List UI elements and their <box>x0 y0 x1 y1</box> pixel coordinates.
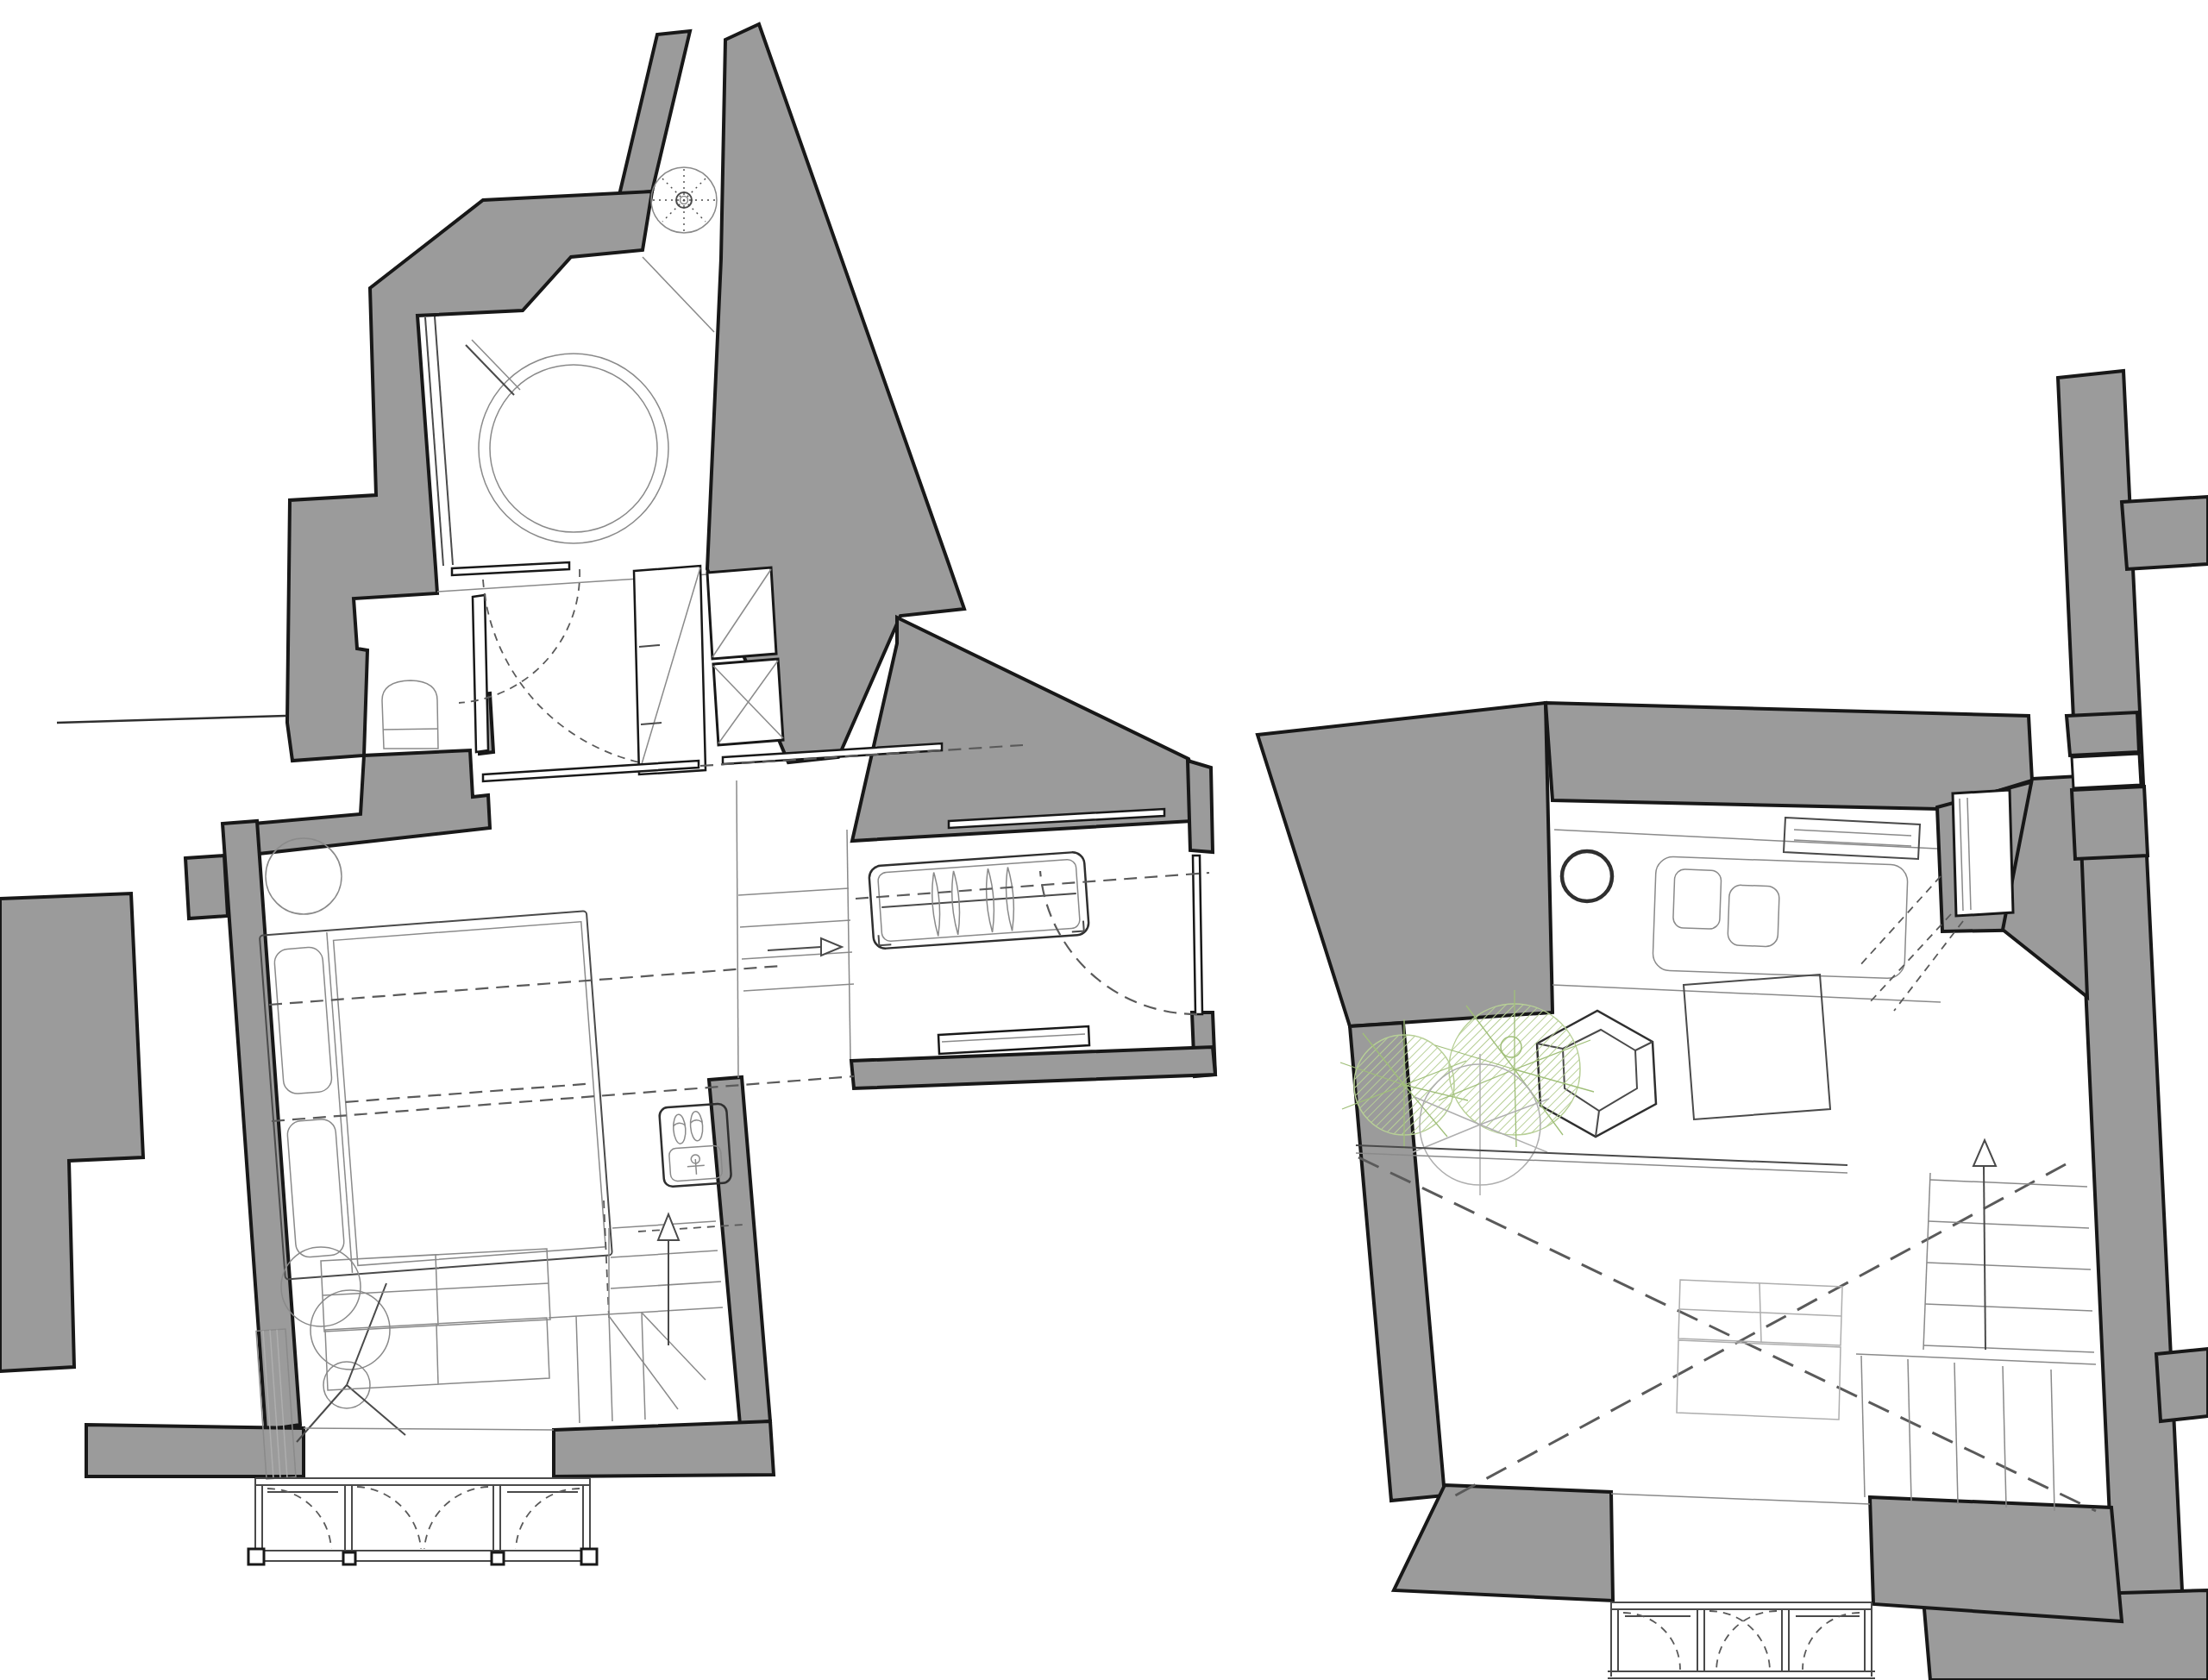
walls-upper <box>1258 371 2208 1680</box>
bed-fold-line <box>346 1083 593 1102</box>
round-bathtub-inner <box>490 365 657 532</box>
staircase-upper <box>1856 1140 2096 1511</box>
northwest-wall-mass <box>287 191 652 761</box>
double-sink-block <box>1653 856 1908 979</box>
pillow-1 <box>273 946 332 1094</box>
site-boundary-line <box>57 716 285 723</box>
coat-rack <box>869 851 1089 949</box>
bedroom-west-wall <box>223 821 300 1430</box>
up-arrow <box>1973 1140 1996 1350</box>
doormat <box>938 1026 1089 1054</box>
hall-ceiling-dash <box>856 873 1209 899</box>
lower-floor-plan <box>0 24 1215 1564</box>
bedroom-east-wall <box>709 1077 770 1425</box>
entry-door-swing <box>1040 871 1197 1014</box>
towel-bar <box>466 340 520 395</box>
bathroom-door-leaf <box>452 562 569 575</box>
slippers-icon <box>672 1111 703 1144</box>
hall-south-wall <box>851 1047 1215 1088</box>
l-shaped-staircase <box>549 1214 723 1423</box>
walls-lower <box>0 24 1215 1476</box>
east-arm-lower <box>2156 1349 2208 1421</box>
tub-glass-wall-b <box>435 317 453 565</box>
round-bathtub-outer <box>479 354 668 543</box>
east-arm-mid-b <box>2072 787 2148 859</box>
south-wall-right-block <box>1870 1497 2122 1621</box>
wall-shelf <box>1784 818 1920 859</box>
shower-floor-edge <box>643 257 714 332</box>
balcony-french-windows <box>1608 1494 1875 1678</box>
void-edge-dash-2 <box>272 1076 854 1121</box>
floor-plan-sheet <box>0 0 2208 1680</box>
neighbour-window-slit <box>2072 754 2141 788</box>
hall-north-wall <box>852 617 1211 841</box>
tripod-floor-lamp <box>297 1283 405 1442</box>
kitchen <box>1552 818 1941 1002</box>
wardrobes <box>634 566 783 774</box>
east-arm-mid-a <box>2067 712 2139 755</box>
east-arm-upper <box>2122 497 2208 569</box>
upper-floor-plan <box>1258 371 2208 1680</box>
south-wall-right-block <box>554 1421 774 1476</box>
counter-back-line <box>1554 830 1937 849</box>
bedroom-top-wall <box>224 750 490 857</box>
window-swing-arcs <box>267 1487 580 1549</box>
floor-drain-icon <box>651 167 717 233</box>
wc-east-partition <box>473 595 488 752</box>
window-swing-arcs <box>1623 1611 1860 1671</box>
landing-steps <box>737 780 854 1078</box>
entrance-hall <box>856 809 1209 1054</box>
northwest-wall-chunk <box>1258 703 1552 1026</box>
glass-balustrade-a <box>1356 1145 1847 1165</box>
south-wall-left-block <box>1394 1485 1613 1601</box>
wing-left-wall <box>619 31 690 195</box>
up-arrow <box>658 1214 679 1345</box>
entry-door-leaf <box>1193 856 1202 1014</box>
wc <box>382 680 438 749</box>
toilet-icon <box>382 680 438 749</box>
bathroom <box>466 340 668 543</box>
west-wall-recess <box>185 856 228 918</box>
double-bed <box>260 911 612 1279</box>
pillow-2 <box>286 1119 345 1258</box>
void-edge-dash-1 <box>269 966 781 1005</box>
round-basin <box>1562 851 1612 901</box>
neighbour-mass-west <box>0 893 143 1371</box>
hall-east-wall-upper <box>1188 761 1213 852</box>
stair-void-dash-v <box>604 1200 609 1318</box>
void-cross-2 <box>1449 1164 2066 1499</box>
